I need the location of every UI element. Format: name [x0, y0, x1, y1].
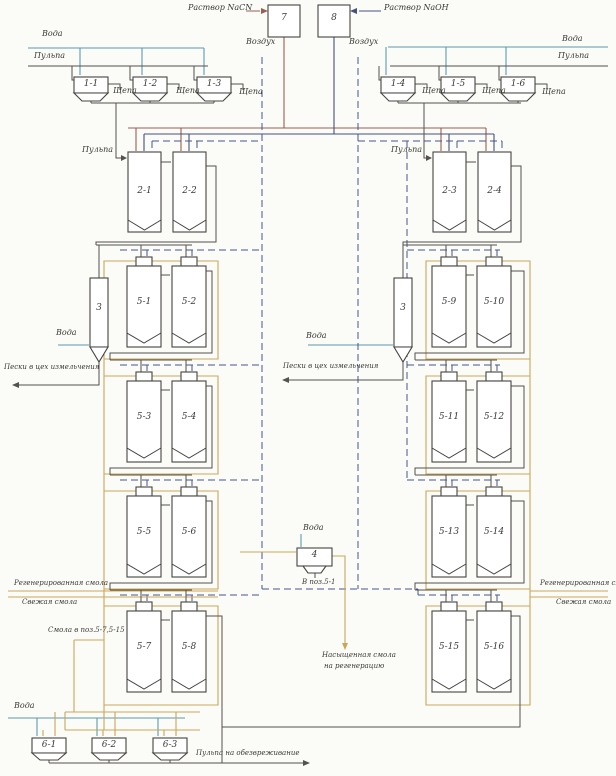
unit-7-label: 7 [268, 13, 300, 23]
unit-2-4-label: 2-4 [478, 186, 511, 196]
unit-5-11-label: 5-11 [432, 412, 466, 422]
process-flow-diagram: Раствор NaCN Раствор NaOH 7 8 Воздух Воз… [0, 0, 616, 776]
unit-8-label: 8 [318, 13, 350, 23]
label-water-classifier-left: Вода [56, 329, 77, 338]
label-pulp-feed-left: Пульпа [82, 146, 113, 155]
arrow-saturated-resin [342, 643, 348, 650]
unit-5-10-label: 5-10 [477, 297, 511, 307]
unit-5-8-label: 5-8 [172, 642, 206, 652]
label-pulp-detox: Пульпа на обезвреживание [196, 750, 299, 758]
arrow-pulp-into-2-3 [426, 155, 432, 161]
unit-6-3-label: 6-3 [153, 740, 187, 750]
label-pulp-top-left: Пульпа [34, 52, 65, 61]
label-water-top-left: Вода [42, 30, 63, 39]
arrow-naoh-into-8 [350, 8, 357, 14]
arrow-pulp-detox [303, 760, 310, 766]
label-naoh-solution: Раствор NaOH [384, 4, 449, 13]
label-saturated-resin-1: Насыщенная смола [322, 652, 396, 660]
unit-1-4-label: 1-4 [381, 79, 415, 89]
unit-5-12-label: 5-12 [477, 412, 511, 422]
label-chips-5: Щепа [482, 87, 506, 96]
unit-4-label: 4 [297, 550, 332, 560]
label-regenerated-resin-left: Регенерированная смола [14, 580, 108, 588]
arrow-pulp-into-2-1 [121, 155, 127, 161]
label-resin-to-pos: Смола в поз.5-7,5-15 [48, 627, 125, 635]
label-pulp-feed-right: Пульпа [391, 146, 422, 155]
label-sands-right: Пески в цех измельчения [283, 363, 378, 371]
unit-5-15-label: 5-15 [432, 642, 466, 652]
label-pulp-top-right: Пульпа [558, 52, 589, 61]
label-chips-6: Щепа [542, 88, 566, 97]
unit-5-2-label: 5-2 [172, 297, 206, 307]
unit-6-1-label: 6-1 [32, 740, 66, 750]
unit-2-1-label: 2-1 [128, 186, 161, 196]
unit-1-6-label: 1-6 [501, 79, 535, 89]
unit-1-1-label: 1-1 [74, 79, 108, 89]
unit-5-6-label: 5-6 [172, 527, 206, 537]
arrow-nacn-into-7 [261, 8, 268, 14]
unit-5-13-label: 5-13 [432, 527, 466, 537]
unit-5-5-label: 5-5 [127, 527, 161, 537]
unit-6-2-label: 6-2 [92, 740, 126, 750]
label-to-pos-5-1: В поз.5-1 [302, 579, 335, 587]
unit-5-7-label: 5-7 [127, 642, 161, 652]
pulp-pipe-network [14, 66, 608, 763]
label-water-bottom: Вода [14, 702, 35, 711]
unit-5-3-label: 5-3 [127, 412, 161, 422]
unit-3-right-label: 3 [394, 303, 412, 313]
unit-1-3-label: 1-3 [197, 79, 231, 89]
nacn-pipe-network [128, 11, 486, 151]
label-sands-left: Пески в цех измельчения [4, 364, 99, 372]
unit-1-5-label: 1-5 [441, 79, 475, 89]
label-chips-1: Щепа [113, 87, 137, 96]
label-fresh-resin-left: Свежая смола [22, 599, 77, 607]
label-chips-4: Щепа [422, 87, 446, 96]
unit-2-2-label: 2-2 [173, 186, 206, 196]
label-chips-2: Щепа [176, 87, 200, 96]
label-water-top-right: Вода [562, 35, 583, 44]
label-water-classifier-right: Вода [306, 332, 327, 341]
unit-2-3-label: 2-3 [433, 186, 466, 196]
unit-5-14-label: 5-14 [477, 527, 511, 537]
label-regenerated-resin-right: Регенерированная смола [540, 580, 616, 588]
unit-5-9-label: 5-9 [432, 297, 466, 307]
arrow-sands-right [282, 377, 289, 383]
label-water-resin-screen: Вода [303, 524, 324, 533]
label-air-left: Воздух [246, 38, 275, 47]
unit-5-16-label: 5-16 [477, 642, 511, 652]
unit-1-2-label: 1-2 [133, 79, 167, 89]
label-saturated-resin-2: на регенерацию [324, 663, 384, 671]
unit-5-1-label: 5-1 [127, 297, 161, 307]
label-nacn-solution: Раствор NaCN [188, 4, 245, 13]
unit-3-left-label: 3 [90, 303, 108, 313]
flow-diagram-graphics [0, 0, 616, 776]
unit-5-4-label: 5-4 [172, 412, 206, 422]
label-air-right: Воздух [349, 38, 378, 47]
arrow-sands-left [12, 382, 19, 388]
label-fresh-resin-right: Свежая смола [556, 599, 611, 607]
label-chips-3: Щепа [239, 88, 263, 97]
